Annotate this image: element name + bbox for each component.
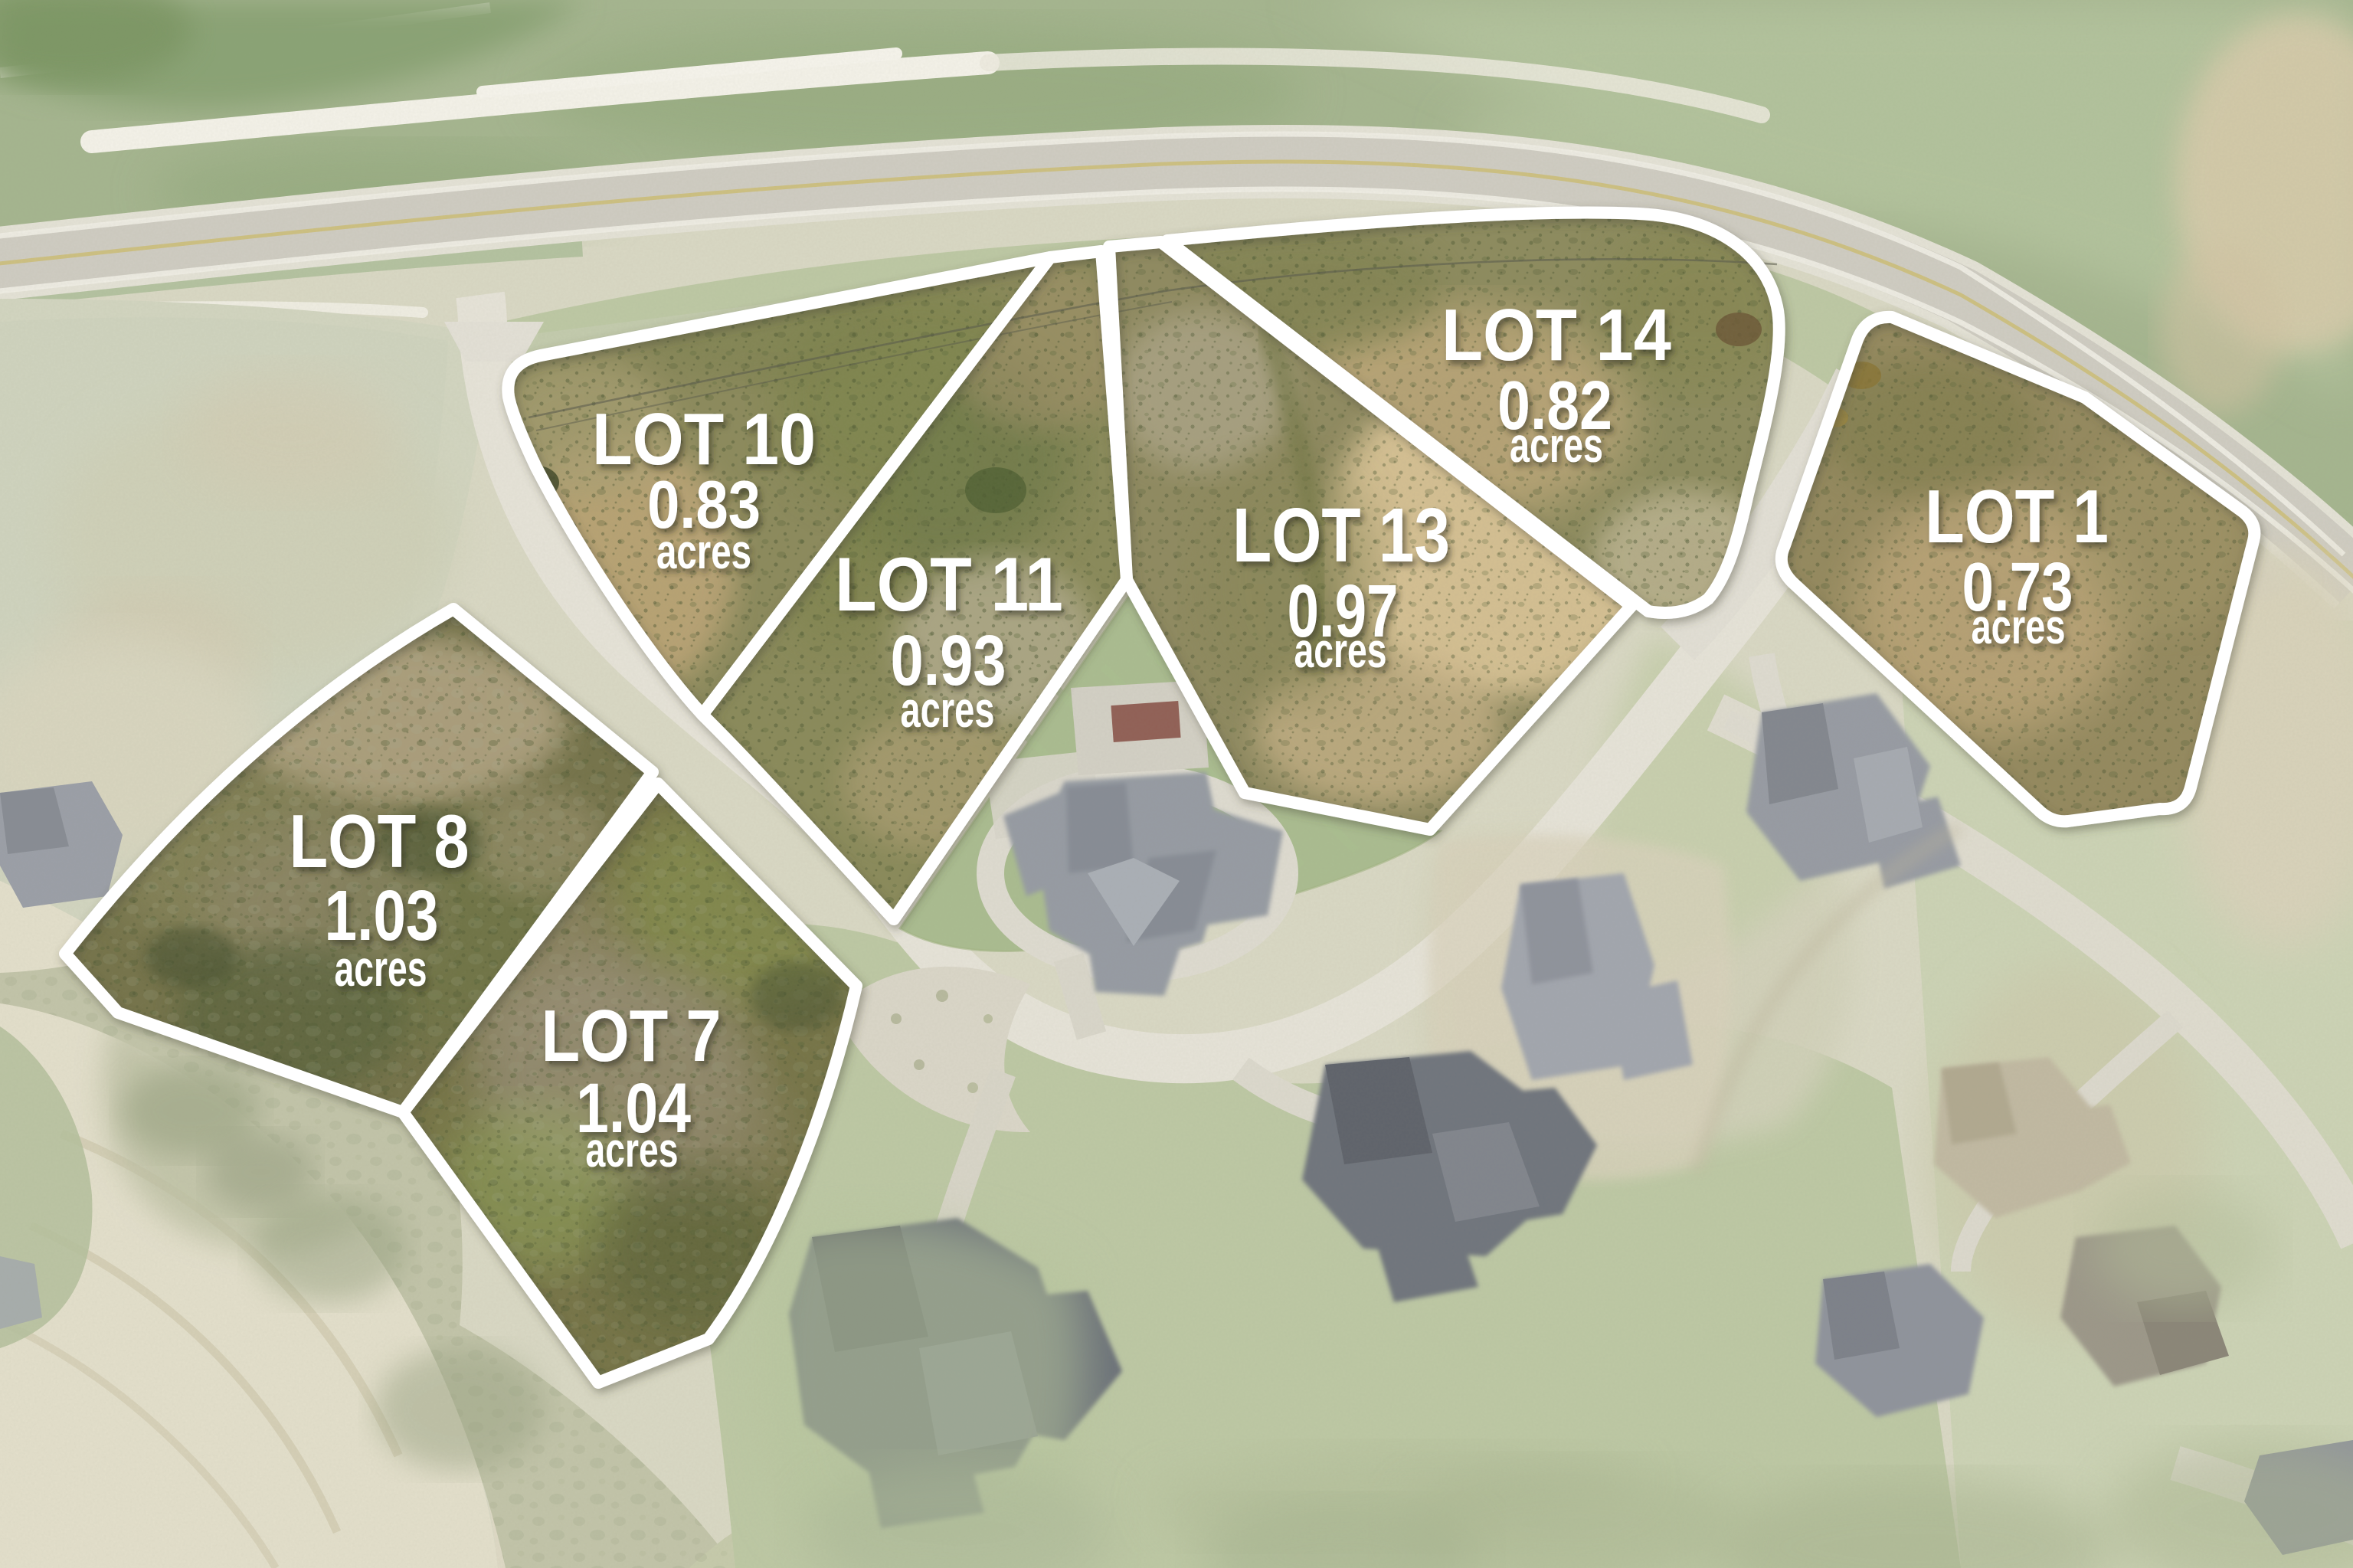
svg-text:acres: acres bbox=[1972, 599, 2066, 654]
svg-text:LOT 13: LOT 13 bbox=[1232, 493, 1450, 578]
svg-text:LOT 8: LOT 8 bbox=[290, 799, 470, 883]
svg-text:acres: acres bbox=[1510, 417, 1603, 473]
svg-text:acres: acres bbox=[586, 1122, 679, 1177]
svg-text:LOT 1: LOT 1 bbox=[1925, 474, 2109, 558]
svg-text:acres: acres bbox=[656, 524, 751, 579]
svg-text:LOT 11: LOT 11 bbox=[835, 542, 1063, 627]
svg-text:acres: acres bbox=[901, 681, 995, 738]
svg-text:acres: acres bbox=[1294, 623, 1387, 678]
svg-text:acres: acres bbox=[335, 940, 427, 997]
svg-text:LOT 7: LOT 7 bbox=[542, 995, 722, 1077]
svg-text:LOT 14: LOT 14 bbox=[1442, 294, 1671, 376]
